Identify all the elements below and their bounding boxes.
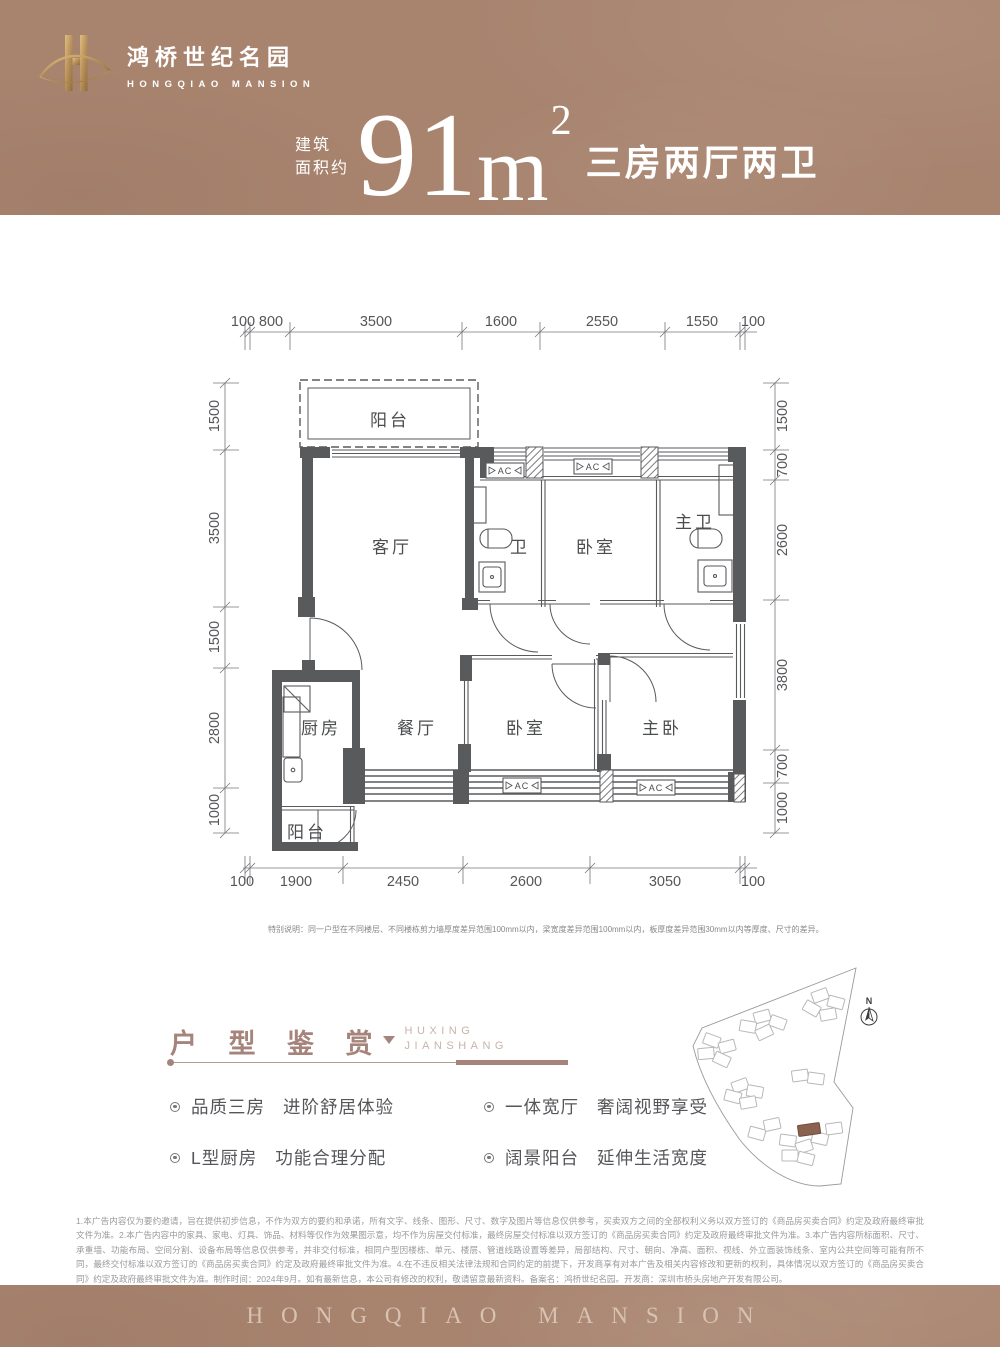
- brand-names: 鸿桥世纪名园 HONGQIAO MANSION: [127, 40, 315, 90]
- dim-label: 2450: [387, 874, 419, 890]
- dim-label: 2600: [775, 524, 791, 556]
- feature-item: L型厨房 功能合理分配: [170, 1145, 394, 1170]
- footer-brand-text: HONGQIAO MANSION: [228, 1303, 771, 1329]
- logo-h-icon: [38, 30, 112, 100]
- section-title: 户 型 鉴 赏: [170, 1022, 385, 1061]
- dim-label: 800: [259, 314, 283, 330]
- brand-logo: 鸿桥世纪名园 HONGQIAO MANSION: [38, 30, 315, 100]
- room-label-bedroom-a: 卧室: [576, 538, 616, 557]
- dim-label: 100: [741, 314, 765, 330]
- section-title-en: HUXING JIANSHANG: [405, 1024, 508, 1054]
- feature-list: 品质三房 进阶舒居体验 L型厨房 功能合理分配 一体宽厅 奢阔视野享受 阔景阳台…: [170, 1094, 708, 1170]
- area-sup: 2: [551, 100, 572, 142]
- area-value: 91 m 2: [357, 100, 572, 202]
- dim-label: 1000: [207, 794, 223, 826]
- header-band: 鸿桥世纪名园 HONGQIAO MANSION 建筑 面积约 91 m 2 三房…: [0, 0, 1000, 215]
- dim-label: 3050: [649, 874, 681, 890]
- dim-label: 700: [775, 754, 791, 778]
- room-label-bedroom-b: 卧室: [506, 719, 546, 738]
- ac-label: AC: [515, 781, 530, 791]
- siteplan-map: N: [665, 948, 990, 1203]
- brand-name-en: HONGQIAO MANSION: [127, 79, 315, 90]
- floorplan-diagram: 100 800 3500 1600 2550 1550 100 100 1900…: [180, 290, 840, 905]
- dim-label: 1550: [686, 314, 718, 330]
- plan-note: 特别说明：同一户型在不同楼层、不同楼栋剪力墙厚度差异范围100mm以内，梁宽度差…: [268, 924, 788, 935]
- feature-name: 品质三房: [191, 1094, 265, 1119]
- area-prefix-line1: 建筑: [295, 134, 349, 157]
- area-prefix-line2: 面积约: [295, 157, 349, 180]
- brand-name-cn: 鸿桥世纪名园: [127, 40, 315, 72]
- dim-label: 1500: [207, 621, 223, 653]
- dim-label: 1000: [775, 792, 791, 824]
- site-highlight-building: [797, 1123, 820, 1137]
- rule-dot-icon: [167, 1059, 174, 1066]
- section-header: 户 型 鉴 赏 HUXING JIANSHANG: [170, 1022, 508, 1061]
- room-label-master-bath: 主卫: [675, 513, 715, 532]
- room-label-dining: 餐厅: [397, 719, 437, 738]
- bullet-icon: [484, 1153, 494, 1163]
- room-label-balcony-bottom: 阳台: [287, 823, 327, 842]
- north-label: N: [866, 996, 873, 1006]
- dim-label: 3500: [360, 314, 392, 330]
- hatched-walls: [526, 447, 745, 802]
- room-label-master-bedroom: 主卧: [642, 719, 682, 738]
- feature-name: 一体宽厅: [505, 1094, 579, 1119]
- dim-label: 3500: [207, 512, 223, 544]
- ac-label: AC: [649, 783, 664, 793]
- dim-label: 1500: [207, 400, 223, 432]
- area-unit: m: [477, 136, 549, 202]
- dim-label: 2600: [510, 874, 542, 890]
- bullet-icon: [170, 1102, 180, 1112]
- feature-column: 品质三房 进阶舒居体验 L型厨房 功能合理分配: [170, 1094, 394, 1170]
- bullet-icon: [484, 1102, 494, 1112]
- page-title: 建筑 面积约 91 m 2 三房两厅两卫: [295, 100, 820, 202]
- dimension-labels: 100 800 3500 1600 2550 1550 100 100 1900…: [207, 314, 791, 890]
- room-label-bath: 卫: [510, 538, 530, 557]
- section-rule: [170, 1062, 568, 1063]
- layout-title: 三房两厅两卫: [586, 134, 820, 186]
- room-label-living: 客厅: [372, 538, 412, 557]
- feature-desc: 进阶舒居体验: [283, 1094, 394, 1119]
- section-title-en-line1: HUXING: [405, 1024, 508, 1039]
- legal-text: 1.本广告内容仅为要约邀请，旨在提供初步信息，不作为双方的要约和承诺，所有文字、…: [76, 1214, 924, 1286]
- feature-name: 阔景阳台: [505, 1145, 579, 1170]
- ac-units: AC AC AC AC: [486, 459, 675, 795]
- bullet-icon: [170, 1153, 180, 1163]
- dim-label: 100: [741, 874, 765, 890]
- ac-label: AC: [498, 466, 513, 476]
- footer-band: HONGQIAO MANSION: [0, 1285, 1000, 1347]
- dim-label: 100: [231, 314, 255, 330]
- feature-desc: 功能合理分配: [275, 1145, 386, 1170]
- dim-label: 1900: [280, 874, 312, 890]
- dim-label: 2550: [586, 314, 618, 330]
- room-label-balcony-top: 阳台: [370, 411, 410, 430]
- feature-name: L型厨房: [191, 1145, 257, 1170]
- area-prefix: 建筑 面积约: [295, 134, 349, 180]
- feature-item: 品质三房 进阶舒居体验: [170, 1094, 394, 1119]
- poster-page: 鸿桥世纪名园 HONGQIAO MANSION 建筑 面积约 91 m 2 三房…: [0, 0, 1000, 1347]
- section-title-en-line2: JIANSHANG: [405, 1039, 508, 1054]
- dim-label: 2800: [207, 712, 223, 744]
- triangle-down-icon: [383, 1036, 395, 1044]
- north-compass-icon: N: [861, 996, 877, 1025]
- dim-label: 1500: [775, 400, 791, 432]
- ac-label: AC: [586, 462, 601, 472]
- dim-label: 100: [230, 874, 254, 890]
- rule-bar-icon: [456, 1060, 568, 1065]
- dim-label: 1600: [485, 314, 517, 330]
- room-label-kitchen: 厨房: [301, 719, 341, 738]
- dim-label: 3800: [775, 659, 791, 691]
- dim-label: 700: [775, 453, 791, 477]
- area-number: 91: [357, 108, 477, 202]
